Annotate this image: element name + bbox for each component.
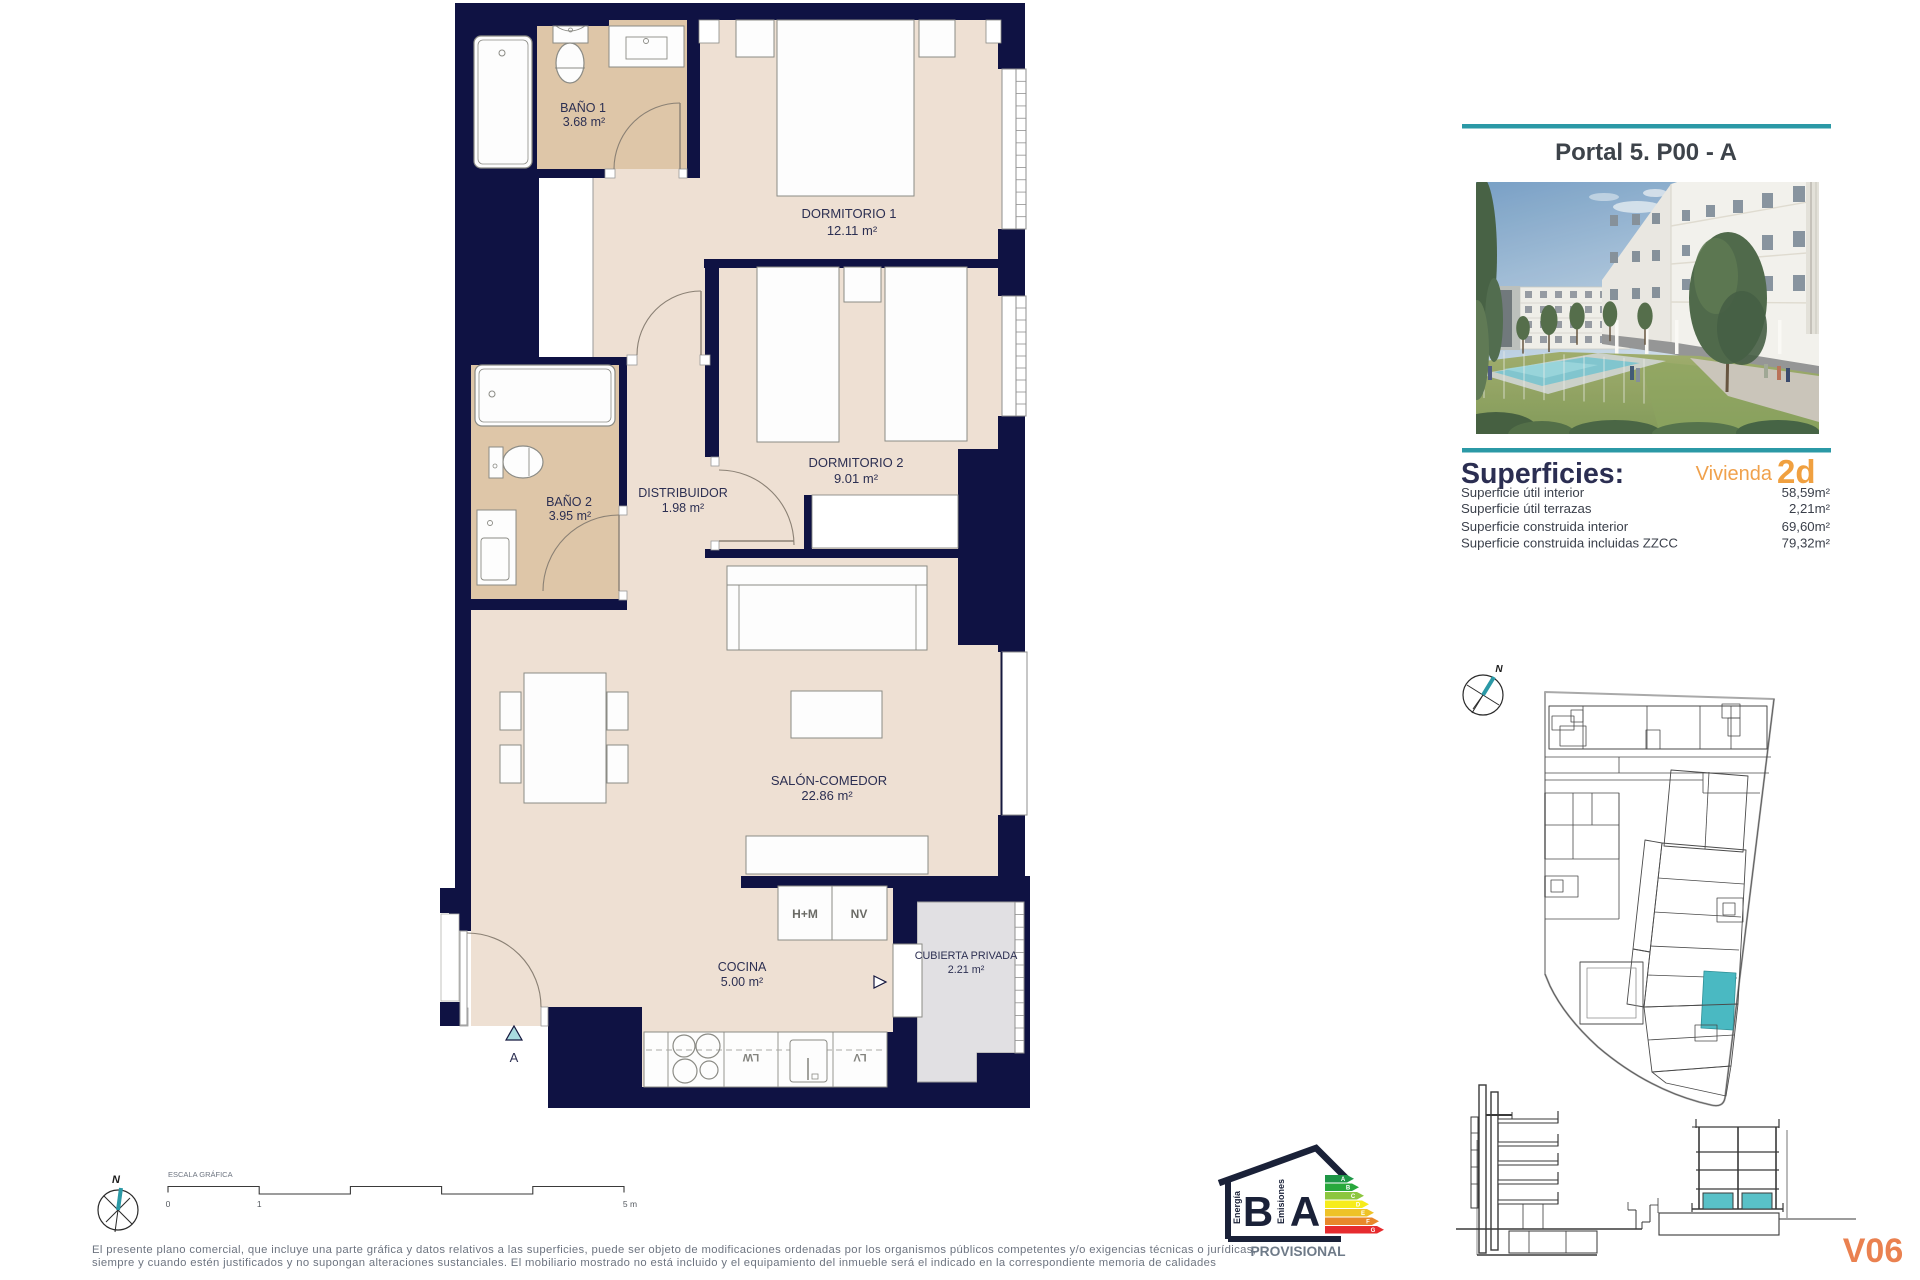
svg-text:F: F [1366, 1220, 1370, 1226]
svg-text:Portal 5. P00 - A: Portal 5. P00 - A [1555, 139, 1737, 166]
svg-text:12.11 m²: 12.11 m² [827, 223, 878, 238]
svg-text:CUBIERTA PRIVADA: CUBIERTA PRIVADA [915, 950, 1018, 962]
svg-text:1: 1 [257, 1199, 262, 1209]
svg-text:B: B [1346, 1186, 1351, 1192]
svg-text:ESCALA GRÁFICA: ESCALA GRÁFICA [168, 1170, 233, 1179]
svg-text:BAÑO 2: BAÑO 2 [546, 495, 592, 509]
svg-text:22.86 m²: 22.86 m² [801, 788, 853, 803]
svg-text:Emisiones: Emisiones [1276, 1179, 1286, 1224]
svg-text:Superficie construida interior: Superficie construida interior [1461, 519, 1629, 534]
svg-text:NV: NV [851, 907, 868, 921]
svg-text:PROVISIONAL: PROVISIONAL [1250, 1244, 1345, 1259]
svg-text:LV: LV [853, 1051, 867, 1063]
svg-text:79,32m²: 79,32m² [1782, 536, 1831, 551]
svg-text:V06: V06 [1843, 1232, 1904, 1270]
svg-text:3.68 m²: 3.68 m² [563, 115, 605, 129]
svg-text:Superficie construida incluida: Superficie construida incluidas ZZCC [1461, 536, 1678, 551]
svg-text:LW: LW [742, 1051, 759, 1063]
svg-text:0: 0 [166, 1199, 171, 1209]
svg-text:1.98 m²: 1.98 m² [662, 501, 704, 515]
svg-text:2,21m²: 2,21m² [1789, 501, 1831, 516]
svg-text:D: D [1356, 1203, 1361, 1209]
svg-text:3.95 m²: 3.95 m² [549, 509, 591, 523]
svg-text:COCINA: COCINA [718, 960, 767, 974]
svg-text:A: A [510, 1050, 519, 1065]
svg-text:Superficie útil terrazas: Superficie útil terrazas [1461, 501, 1592, 516]
svg-text:H+M: H+M [792, 907, 818, 921]
svg-text:BAÑO 1: BAÑO 1 [560, 101, 606, 115]
svg-text:58,59m²: 58,59m² [1782, 485, 1831, 500]
svg-text:siempre y cuando estén justifi: siempre y cuando estén justificados y no… [92, 1257, 1216, 1269]
svg-text:B: B [1243, 1188, 1273, 1235]
svg-text:5.00 m²: 5.00 m² [721, 975, 763, 989]
svg-text:Superficie útil interior: Superficie útil interior [1461, 485, 1585, 500]
svg-text:El presente plano comercial, q: El presente plano comercial, que incluye… [92, 1244, 1256, 1256]
svg-text:DORMITORIO 1: DORMITORIO 1 [801, 206, 896, 221]
svg-text:G: G [1371, 1228, 1376, 1234]
svg-text:2.21 m²: 2.21 m² [948, 964, 985, 976]
svg-text:9.01 m²: 9.01 m² [834, 471, 879, 486]
svg-text:DISTRIBUIDOR: DISTRIBUIDOR [638, 486, 728, 500]
svg-text:Energía: Energía [1232, 1190, 1242, 1224]
svg-text:Vivienda: Vivienda [1696, 463, 1773, 485]
svg-text:5 m: 5 m [623, 1199, 637, 1209]
svg-text:SALÓN-COMEDOR: SALÓN-COMEDOR [771, 773, 887, 788]
svg-text:N: N [1495, 664, 1503, 675]
svg-text:C: C [1351, 1194, 1356, 1200]
svg-text:A: A [1290, 1188, 1320, 1235]
svg-text:69,60m²: 69,60m² [1782, 519, 1831, 534]
svg-text:N: N [112, 1174, 121, 1186]
svg-text:A: A [1341, 1177, 1346, 1183]
svg-text:DORMITORIO 2: DORMITORIO 2 [808, 455, 903, 470]
svg-text:E: E [1361, 1211, 1365, 1217]
